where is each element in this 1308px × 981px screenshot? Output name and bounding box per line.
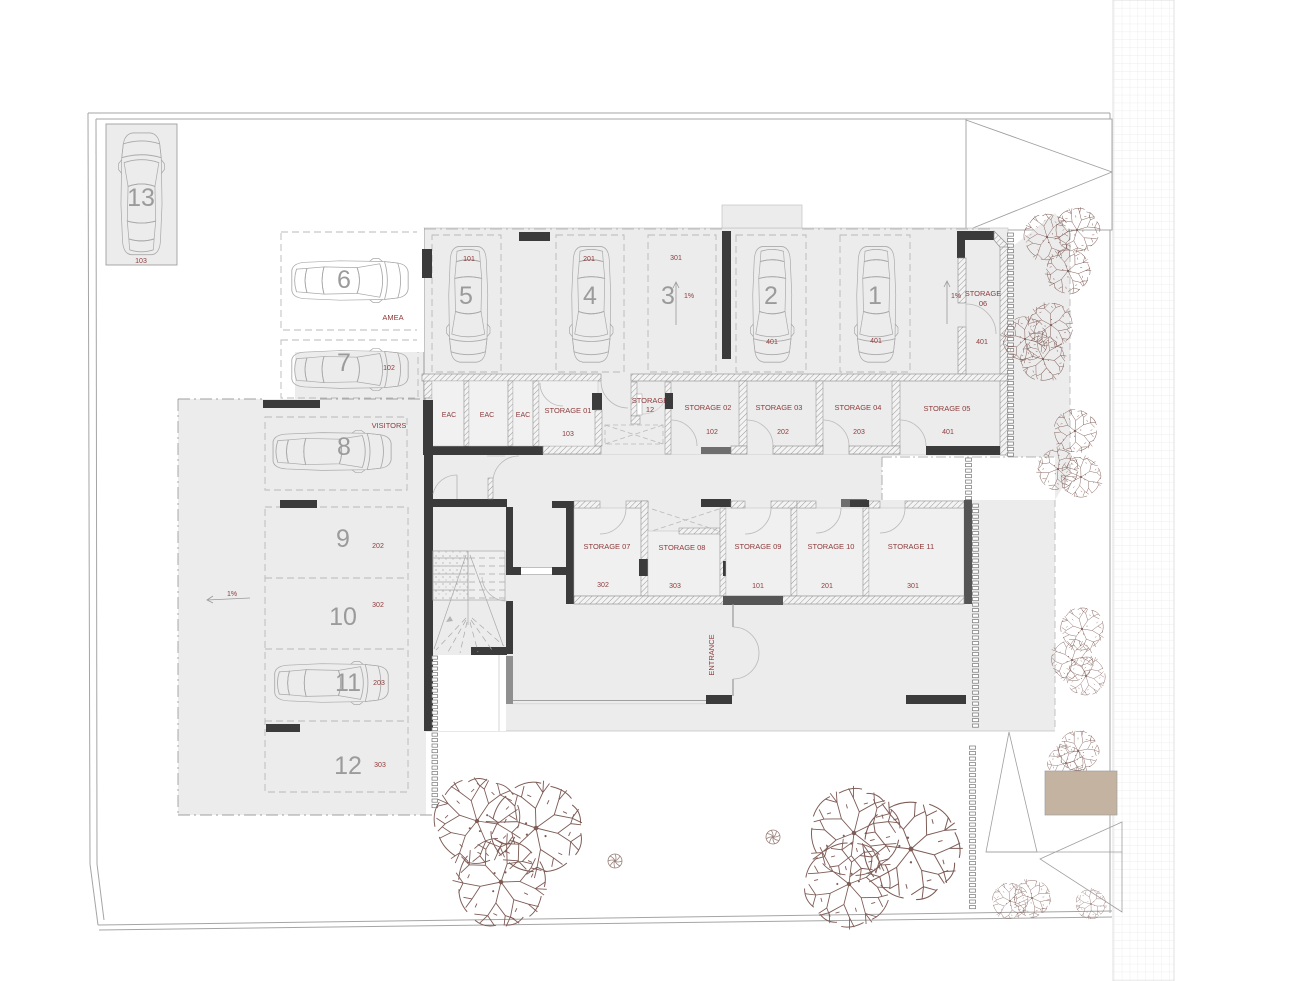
svg-text:303: 303 xyxy=(374,762,386,769)
svg-text:12: 12 xyxy=(646,405,654,414)
svg-text:AMEA: AMEA xyxy=(382,313,403,322)
svg-text:STORAGE 03: STORAGE 03 xyxy=(756,403,803,412)
svg-text:STORAGE 08: STORAGE 08 xyxy=(659,543,706,552)
svg-text:302: 302 xyxy=(372,602,384,609)
svg-text:1%: 1% xyxy=(684,293,694,300)
svg-text:401: 401 xyxy=(870,338,882,345)
svg-text:401: 401 xyxy=(942,429,954,436)
svg-text:STORAGE 05: STORAGE 05 xyxy=(924,404,971,413)
svg-text:302: 302 xyxy=(597,582,609,589)
svg-text:9: 9 xyxy=(336,525,350,553)
svg-text:6: 6 xyxy=(337,266,351,294)
svg-text:06: 06 xyxy=(979,299,987,308)
svg-text:103: 103 xyxy=(135,258,147,265)
svg-text:STORAGE 02: STORAGE 02 xyxy=(685,403,732,412)
svg-text:7: 7 xyxy=(337,349,351,377)
svg-text:STORAGE 01: STORAGE 01 xyxy=(545,406,592,415)
svg-text:102: 102 xyxy=(706,429,718,436)
svg-text:203: 203 xyxy=(373,680,385,687)
svg-text:1: 1 xyxy=(868,282,882,310)
svg-text:VISITORS: VISITORS xyxy=(372,421,407,430)
svg-text:10: 10 xyxy=(329,603,357,631)
svg-text:STORAGE 11: STORAGE 11 xyxy=(888,542,934,551)
svg-text:STORAGE: STORAGE xyxy=(965,289,1002,298)
svg-text:401: 401 xyxy=(766,339,778,346)
svg-text:13: 13 xyxy=(127,184,155,212)
svg-text:EAC: EAC xyxy=(442,412,456,419)
svg-text:1%: 1% xyxy=(951,293,961,300)
svg-text:301: 301 xyxy=(670,255,682,262)
svg-text:STORAGE: STORAGE xyxy=(632,396,669,405)
svg-text:11: 11 xyxy=(335,669,361,697)
svg-text:STORAGE 10: STORAGE 10 xyxy=(808,542,855,551)
svg-text:STORAGE 04: STORAGE 04 xyxy=(835,403,882,412)
svg-text:401: 401 xyxy=(976,339,988,346)
svg-text:1%: 1% xyxy=(227,591,237,598)
svg-text:STORAGE 07: STORAGE 07 xyxy=(584,542,631,551)
svg-text:202: 202 xyxy=(777,429,789,436)
svg-text:ENTRANCE: ENTRANCE xyxy=(707,634,716,675)
svg-text:8: 8 xyxy=(337,433,351,461)
svg-text:203: 203 xyxy=(853,429,865,436)
svg-text:3: 3 xyxy=(661,282,675,310)
svg-text:EAC: EAC xyxy=(480,412,494,419)
svg-text:5: 5 xyxy=(459,282,473,310)
svg-text:STORAGE 09: STORAGE 09 xyxy=(735,542,782,551)
svg-text:101: 101 xyxy=(752,583,764,590)
svg-text:202: 202 xyxy=(372,543,384,550)
svg-text:201: 201 xyxy=(583,256,595,263)
svg-text:EAC: EAC xyxy=(516,412,530,419)
svg-text:12: 12 xyxy=(334,752,362,780)
svg-text:201: 201 xyxy=(821,583,833,590)
svg-text:103: 103 xyxy=(562,431,574,438)
svg-text:301: 301 xyxy=(907,583,919,590)
svg-text:303: 303 xyxy=(669,583,681,590)
svg-text:4: 4 xyxy=(583,282,597,310)
svg-text:102: 102 xyxy=(383,365,395,372)
svg-text:2: 2 xyxy=(764,282,778,310)
svg-text:101: 101 xyxy=(463,256,475,263)
